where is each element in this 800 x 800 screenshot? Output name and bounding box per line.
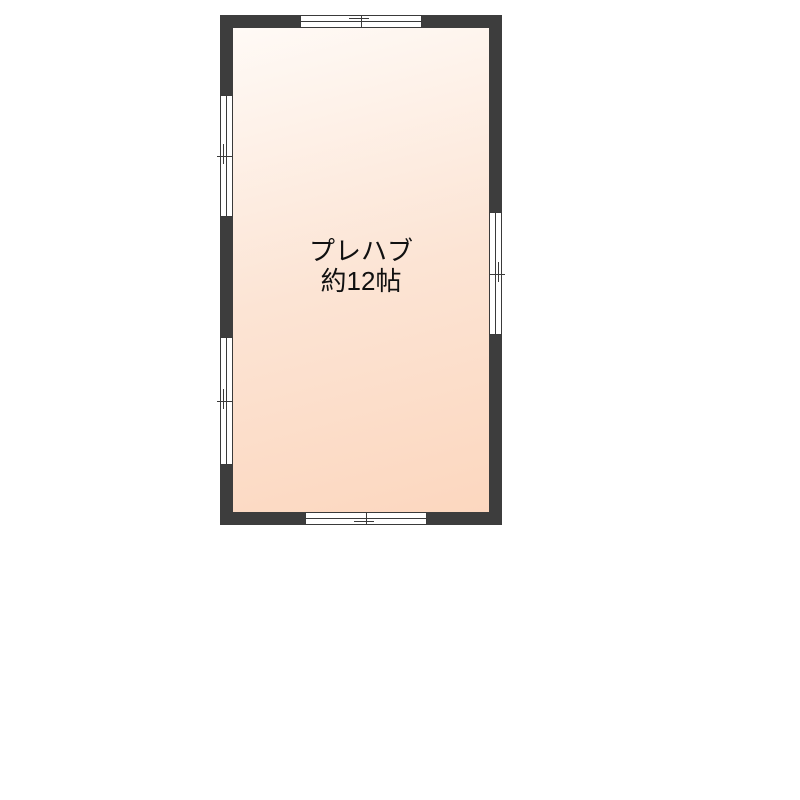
window-sash-line	[217, 156, 233, 157]
window-sash-line	[366, 512, 367, 525]
room-size: 約12帖	[309, 266, 413, 296]
floorplan-canvas: プレハブ 約12帖	[0, 0, 800, 800]
window-sash-tick	[223, 144, 224, 164]
window-bottom	[305, 512, 427, 525]
window-sash-tick	[349, 18, 369, 19]
room-name: プレハブ	[309, 236, 413, 266]
room-prefab: プレハブ 約12帖	[233, 28, 489, 512]
window-sash-tick	[354, 521, 374, 522]
window-top	[300, 15, 422, 28]
window-sash-tick	[498, 262, 499, 282]
window-right	[489, 212, 502, 335]
floorplan: プレハブ 約12帖	[220, 15, 502, 525]
window-left-lower	[220, 337, 233, 465]
window-sash-line	[217, 401, 233, 402]
room-label: プレハブ 約12帖	[309, 236, 413, 296]
window-left-upper	[220, 95, 233, 217]
window-sash-tick	[223, 389, 224, 409]
